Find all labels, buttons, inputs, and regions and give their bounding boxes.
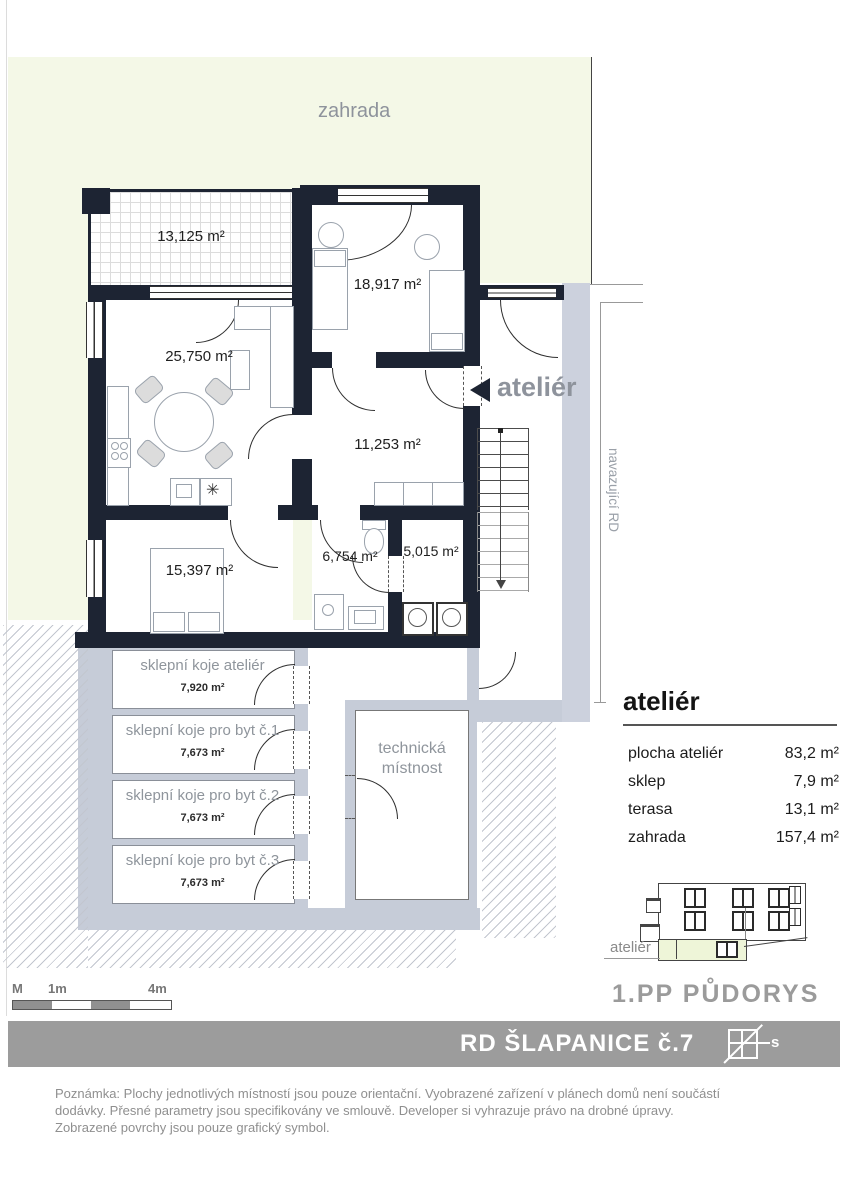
terrain-hatch-left [3, 625, 88, 968]
basement-corridor [308, 645, 467, 700]
hall-area-label: 11,253 m² [312, 436, 463, 453]
burner [120, 452, 128, 460]
bathroom-area-label: 6,754 m² [308, 548, 392, 564]
footer-line-1: Poznámka: Plochy jednotlivých místností … [55, 1086, 720, 1101]
scale-label-4m: 4m [148, 981, 167, 996]
washer-door [442, 608, 461, 627]
compass-pointer-line [758, 1042, 770, 1044]
floorplan-page: { "garden": { "label": "zahrada" }, "roo… [0, 0, 848, 1200]
elevation-window [732, 911, 754, 931]
bedroom-lower-area-label: 15,397 m² [106, 562, 293, 579]
outline-line [590, 284, 643, 285]
title-banner: RD ŠLAPANICE č.7 s [8, 1021, 840, 1067]
pillow [314, 250, 346, 267]
compass-icon: s [720, 1025, 780, 1063]
burner [120, 442, 128, 450]
corridor-door-gap [467, 650, 479, 690]
elevation-line [745, 908, 746, 939]
washer-door [408, 608, 427, 627]
panel-row-label: terasa [628, 801, 672, 819]
scale-segment [91, 1001, 130, 1009]
scale-segment [13, 1001, 52, 1009]
compass-north-letter: s [771, 1034, 779, 1051]
terrain-hatch-bottom [88, 930, 456, 968]
pillow [153, 612, 185, 632]
kitchen-symbol: ✳ [206, 480, 219, 500]
panel-row-label: zahrada [628, 829, 686, 847]
window [488, 288, 556, 298]
wardrobe [374, 482, 464, 506]
storage-2-area: 7,673 m² [112, 747, 293, 759]
elevation-window [768, 888, 790, 908]
utility-area-label: 5,015 m² [396, 543, 466, 559]
elevation-window [789, 886, 801, 904]
stairs-direction-line [500, 430, 501, 582]
window [86, 302, 103, 358]
elevation-line [676, 939, 677, 959]
door-gap [318, 505, 360, 520]
tech-door-gap [345, 775, 355, 819]
panel-row-value: 157,4 m² [745, 829, 839, 847]
panel-row-value: 13,1 m² [745, 801, 839, 819]
elevation-window [684, 911, 706, 931]
scale-label-1m: 1m [48, 981, 67, 996]
sink [176, 484, 192, 498]
elevation-window [768, 911, 790, 931]
outline-line [594, 702, 606, 703]
living-area-label: 25,750 m² [106, 348, 292, 365]
stairs-arrow-icon [496, 580, 506, 589]
window [150, 286, 292, 299]
dining-table [154, 392, 214, 452]
panel-row-value: 7,9 m² [745, 773, 839, 791]
elevation-window [732, 888, 754, 908]
storage-4-label: sklepní koje pro byt č.3 [112, 852, 293, 869]
panel-title: ateliér [623, 686, 700, 717]
banner-title: RD ŠLAPANICE č.7 [460, 1030, 694, 1058]
footer-line-3: Zobrazené povrchy jsou pouze grafický sy… [55, 1120, 330, 1135]
footer-line-2: dodávky. Přesné parametry jsou specifiko… [55, 1103, 674, 1118]
window [338, 188, 428, 203]
storage-2-label: sklepní koje pro byt č.1 [112, 722, 293, 739]
elevation-step [646, 898, 661, 913]
terrain-hatch-right [482, 722, 556, 938]
adjacent-house-label: navazující RD [606, 448, 621, 532]
elevation-atelier-label: ateliér [610, 939, 651, 956]
tech-room-label-1: technická [356, 740, 468, 758]
elevation-label-rule [604, 958, 660, 959]
wall [88, 505, 480, 520]
storage-1-area: 7,920 m² [112, 682, 293, 694]
bedroom-upper-area-label: 18,917 m² [312, 276, 463, 293]
burner [111, 452, 119, 460]
outline-line [600, 302, 643, 303]
garden-label: zahrada [318, 100, 390, 123]
storage-door-4 [293, 861, 310, 899]
outline-line [600, 302, 601, 702]
door-gap [332, 352, 376, 368]
terrace-area-label: 13,125 m² [90, 228, 292, 245]
panel-row-label: sklep [628, 773, 665, 791]
door-gap [292, 415, 312, 459]
tech-room-label-2: místnost [356, 760, 468, 778]
atelier-pointer-label: ateliér [497, 372, 577, 403]
scale-bar-track [12, 1000, 172, 1010]
adjacent-house-wall [562, 283, 590, 722]
door-gap [228, 505, 278, 520]
storage-door-2 [293, 731, 310, 769]
basement-corridor [308, 700, 345, 908]
storage-3-label: sklepní koje pro byt č.2 [112, 787, 293, 804]
burner [111, 442, 119, 450]
storage-4-area: 7,673 m² [112, 877, 293, 889]
floor-caption: 1.PP PŮDORYS [612, 980, 819, 1009]
atelier-arrow-icon [470, 378, 490, 402]
ceiling-lamp [414, 234, 440, 260]
storage-1-label: sklepní koje ateliér [112, 657, 293, 674]
washbasin-bowl [354, 610, 376, 624]
pillow [188, 612, 220, 632]
basement-wall [78, 908, 480, 930]
shower-drain [322, 604, 334, 616]
elevation-window [684, 888, 706, 908]
panel-row-value: 83,2 m² [745, 745, 839, 763]
elevation-window [789, 908, 801, 926]
garden-border-line [591, 57, 592, 284]
storage-door-3 [293, 796, 310, 834]
panel-row-label: plocha ateliér [628, 745, 723, 763]
stairs-start-dot [498, 428, 503, 433]
ceiling-lamp [318, 222, 344, 248]
pillow [431, 333, 463, 350]
storage-door-1 [293, 666, 310, 704]
elevation-basement-window [716, 941, 738, 958]
panel-title-rule [623, 724, 837, 726]
stairs-solid [477, 428, 529, 510]
scale-label-m: M [12, 981, 23, 996]
wall [88, 189, 293, 192]
window [86, 540, 103, 597]
storage-3-area: 7,673 m² [112, 812, 293, 824]
